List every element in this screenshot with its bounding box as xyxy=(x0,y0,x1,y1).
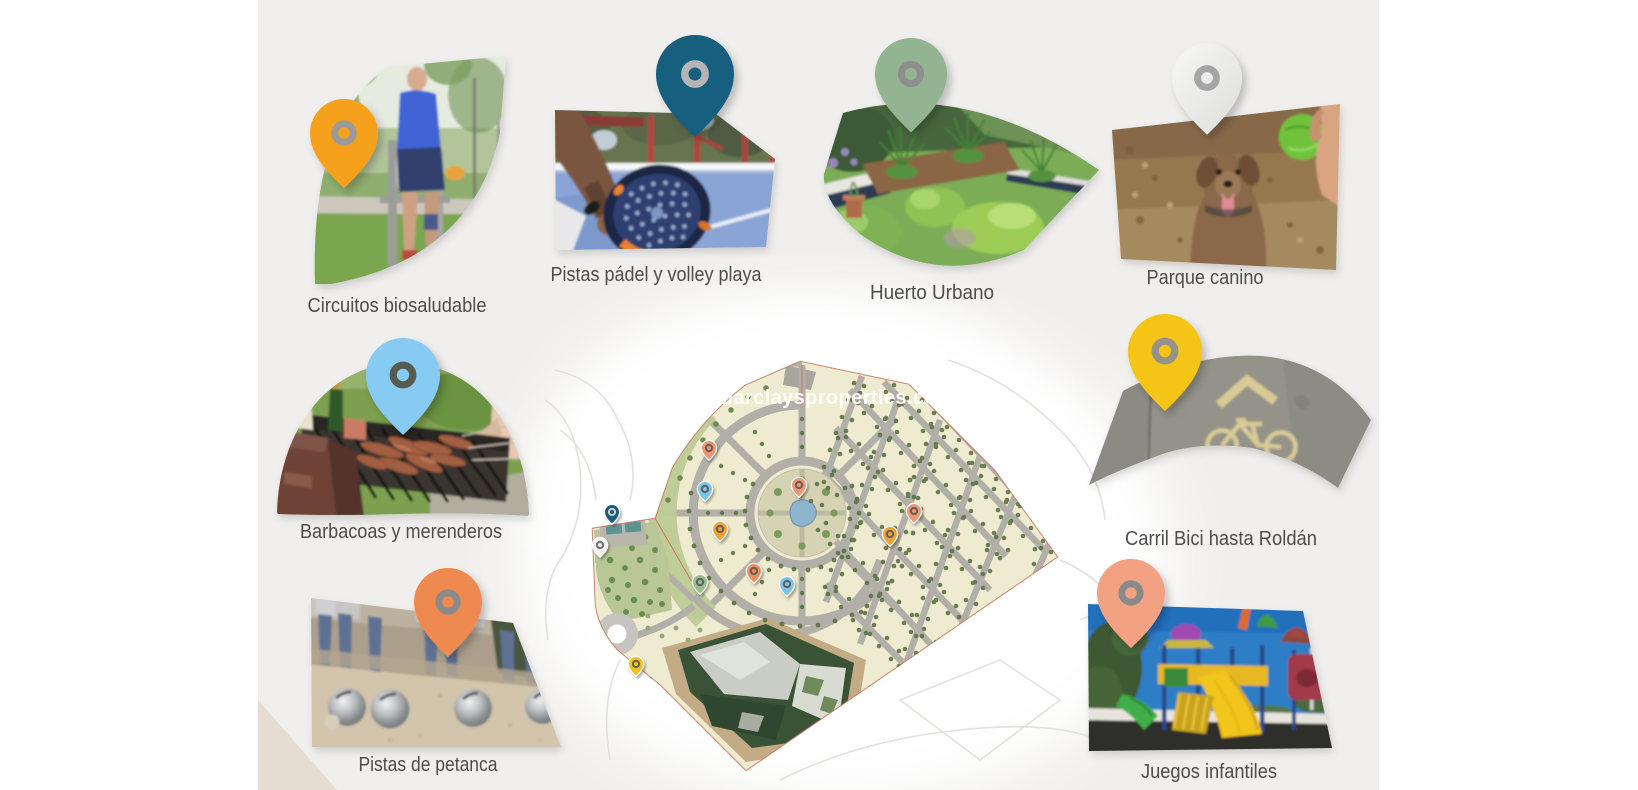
svg-text:Parque canino: Parque canino xyxy=(1147,267,1264,289)
svg-text:Pistas pádel y volley playa: Pistas pádel y volley playa xyxy=(551,264,763,286)
svg-text:barclaysproperties.com: barclaysproperties.com xyxy=(721,387,955,409)
svg-text:Carril Bici hasta Roldán: Carril Bici hasta Roldán xyxy=(1125,528,1317,550)
svg-text:Barbacoas y merenderos: Barbacoas y merenderos xyxy=(300,521,502,543)
svg-text:Pistas de petanca: Pistas de petanca xyxy=(359,754,499,776)
svg-text:Huerto Urbano: Huerto Urbano xyxy=(870,282,994,304)
svg-text:Circuitos biosaludable: Circuitos biosaludable xyxy=(308,295,487,317)
svg-text:Juegos infantiles: Juegos infantiles xyxy=(1141,761,1277,783)
